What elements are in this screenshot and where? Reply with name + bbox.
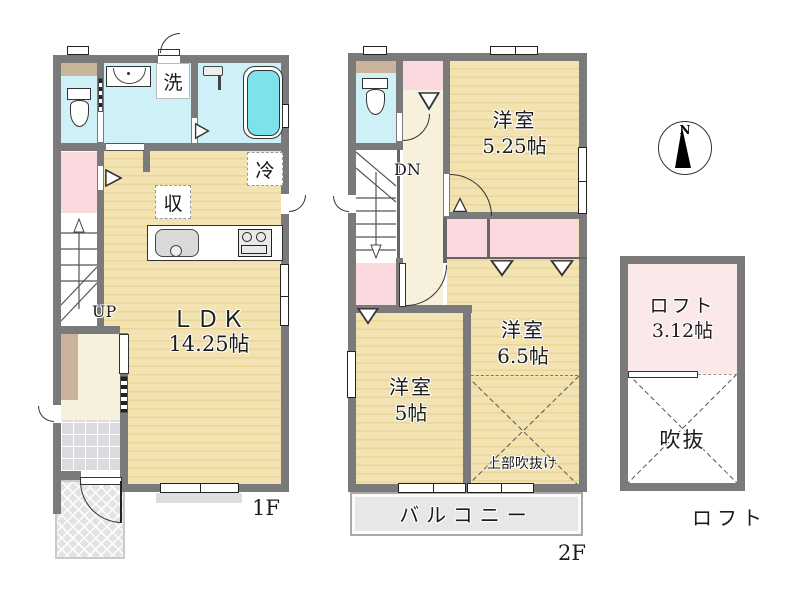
loft-void-label: 吹抜 xyxy=(628,424,737,454)
storage-label: 収 xyxy=(155,185,191,219)
door-opening xyxy=(98,112,103,142)
window xyxy=(363,46,387,55)
wall xyxy=(620,483,745,491)
wall xyxy=(620,256,745,264)
shoe-cabinet xyxy=(61,333,78,400)
room-65-size: 6.5帖 xyxy=(463,340,583,369)
wall xyxy=(53,326,120,334)
wall xyxy=(443,218,447,263)
loft-edge-bar xyxy=(628,371,698,378)
wall xyxy=(356,143,403,150)
window xyxy=(67,46,89,55)
closet-door-triangle xyxy=(549,259,575,277)
sink-icon xyxy=(106,66,151,87)
terrace-step xyxy=(156,493,242,503)
ldk-size: 14.25帖 xyxy=(129,328,289,358)
closet-1f xyxy=(61,152,97,213)
wall xyxy=(61,143,281,151)
door-opening xyxy=(397,113,402,141)
stairs-2f-treads xyxy=(356,150,396,260)
closet-2f-left xyxy=(356,263,396,305)
side-door-arc xyxy=(289,195,306,212)
window xyxy=(347,351,356,398)
wall xyxy=(53,55,61,405)
window xyxy=(490,46,538,55)
room-525-name: 洋室 xyxy=(450,104,579,133)
closet-door-triangle xyxy=(356,307,380,325)
wall xyxy=(737,256,745,491)
floor-plan: 洗 冷 収 UP ＬＤＫ 14.25帖 1F xyxy=(0,0,800,600)
wall xyxy=(53,471,81,480)
wall xyxy=(579,53,587,492)
room-5-name: 洋室 xyxy=(366,371,456,400)
fridge-label: 冷 xyxy=(247,152,283,186)
gate-arc xyxy=(38,406,54,422)
door-opening xyxy=(106,143,144,151)
wall xyxy=(487,219,490,257)
stairs-2f xyxy=(356,150,396,260)
room-525-size: 5.25帖 xyxy=(450,130,579,159)
stairs-down-label: DN xyxy=(394,160,421,179)
floor2-caption: 2F xyxy=(558,541,586,565)
wall xyxy=(53,423,61,514)
loft-name: ロフト xyxy=(628,291,737,318)
window xyxy=(398,483,466,493)
window xyxy=(578,147,587,214)
wall xyxy=(143,151,150,172)
closet-2f-top xyxy=(403,61,443,90)
wall xyxy=(348,53,356,492)
entrance-door-open xyxy=(120,481,122,523)
half-wall-hatch xyxy=(98,78,103,112)
wall xyxy=(620,256,628,491)
toilet-shelf-2f xyxy=(356,61,397,73)
hall-door xyxy=(119,334,129,374)
back-door-arc xyxy=(160,33,180,53)
door-swing-triangle xyxy=(104,168,123,188)
faucet-icon xyxy=(218,76,221,90)
kitchen-sink-icon xyxy=(155,229,199,257)
window xyxy=(467,483,534,493)
door-opening xyxy=(158,55,180,63)
toilet-tank-icon xyxy=(362,78,388,89)
compass-north-label: N xyxy=(658,123,712,137)
room65-door-leaf xyxy=(399,263,406,307)
shower-icon xyxy=(203,66,223,76)
closet-door-triangle xyxy=(417,91,441,111)
door-swing-triangle xyxy=(452,197,468,213)
door-opening xyxy=(444,174,449,216)
stairs-up-label: UP xyxy=(92,302,116,321)
loft-edge-dash xyxy=(698,374,737,375)
loft-caption: ロフト xyxy=(692,502,767,531)
door-opening xyxy=(98,166,103,190)
room-5-size: 5帖 xyxy=(366,397,456,426)
door-opening xyxy=(281,194,289,214)
toilet-tank-icon xyxy=(67,88,91,100)
closet-2f-mid-left xyxy=(447,219,487,257)
stove-icon xyxy=(238,229,272,257)
closet-door-triangle xyxy=(489,259,515,277)
door-swing-triangle xyxy=(194,122,210,140)
door-opening xyxy=(53,405,61,423)
closet-2f-mid-right xyxy=(490,219,578,257)
bathtub-icon xyxy=(243,66,283,139)
window xyxy=(160,483,239,493)
compass: N xyxy=(658,121,712,175)
loft-size: 3.12帖 xyxy=(628,316,737,343)
room-65-name: 洋室 xyxy=(463,314,583,343)
door-opening xyxy=(348,195,356,213)
genkan-tile xyxy=(61,420,120,471)
toilet-shelf-1f xyxy=(61,63,97,76)
void-above-label: 上部吹抜け xyxy=(466,453,578,473)
half-wall-hatch xyxy=(120,376,128,413)
balcony-label: バルコニー xyxy=(350,499,583,528)
floor1-caption: 1F xyxy=(252,496,280,520)
gate-arc xyxy=(333,196,349,212)
laundry-label: 洗 xyxy=(156,63,190,99)
